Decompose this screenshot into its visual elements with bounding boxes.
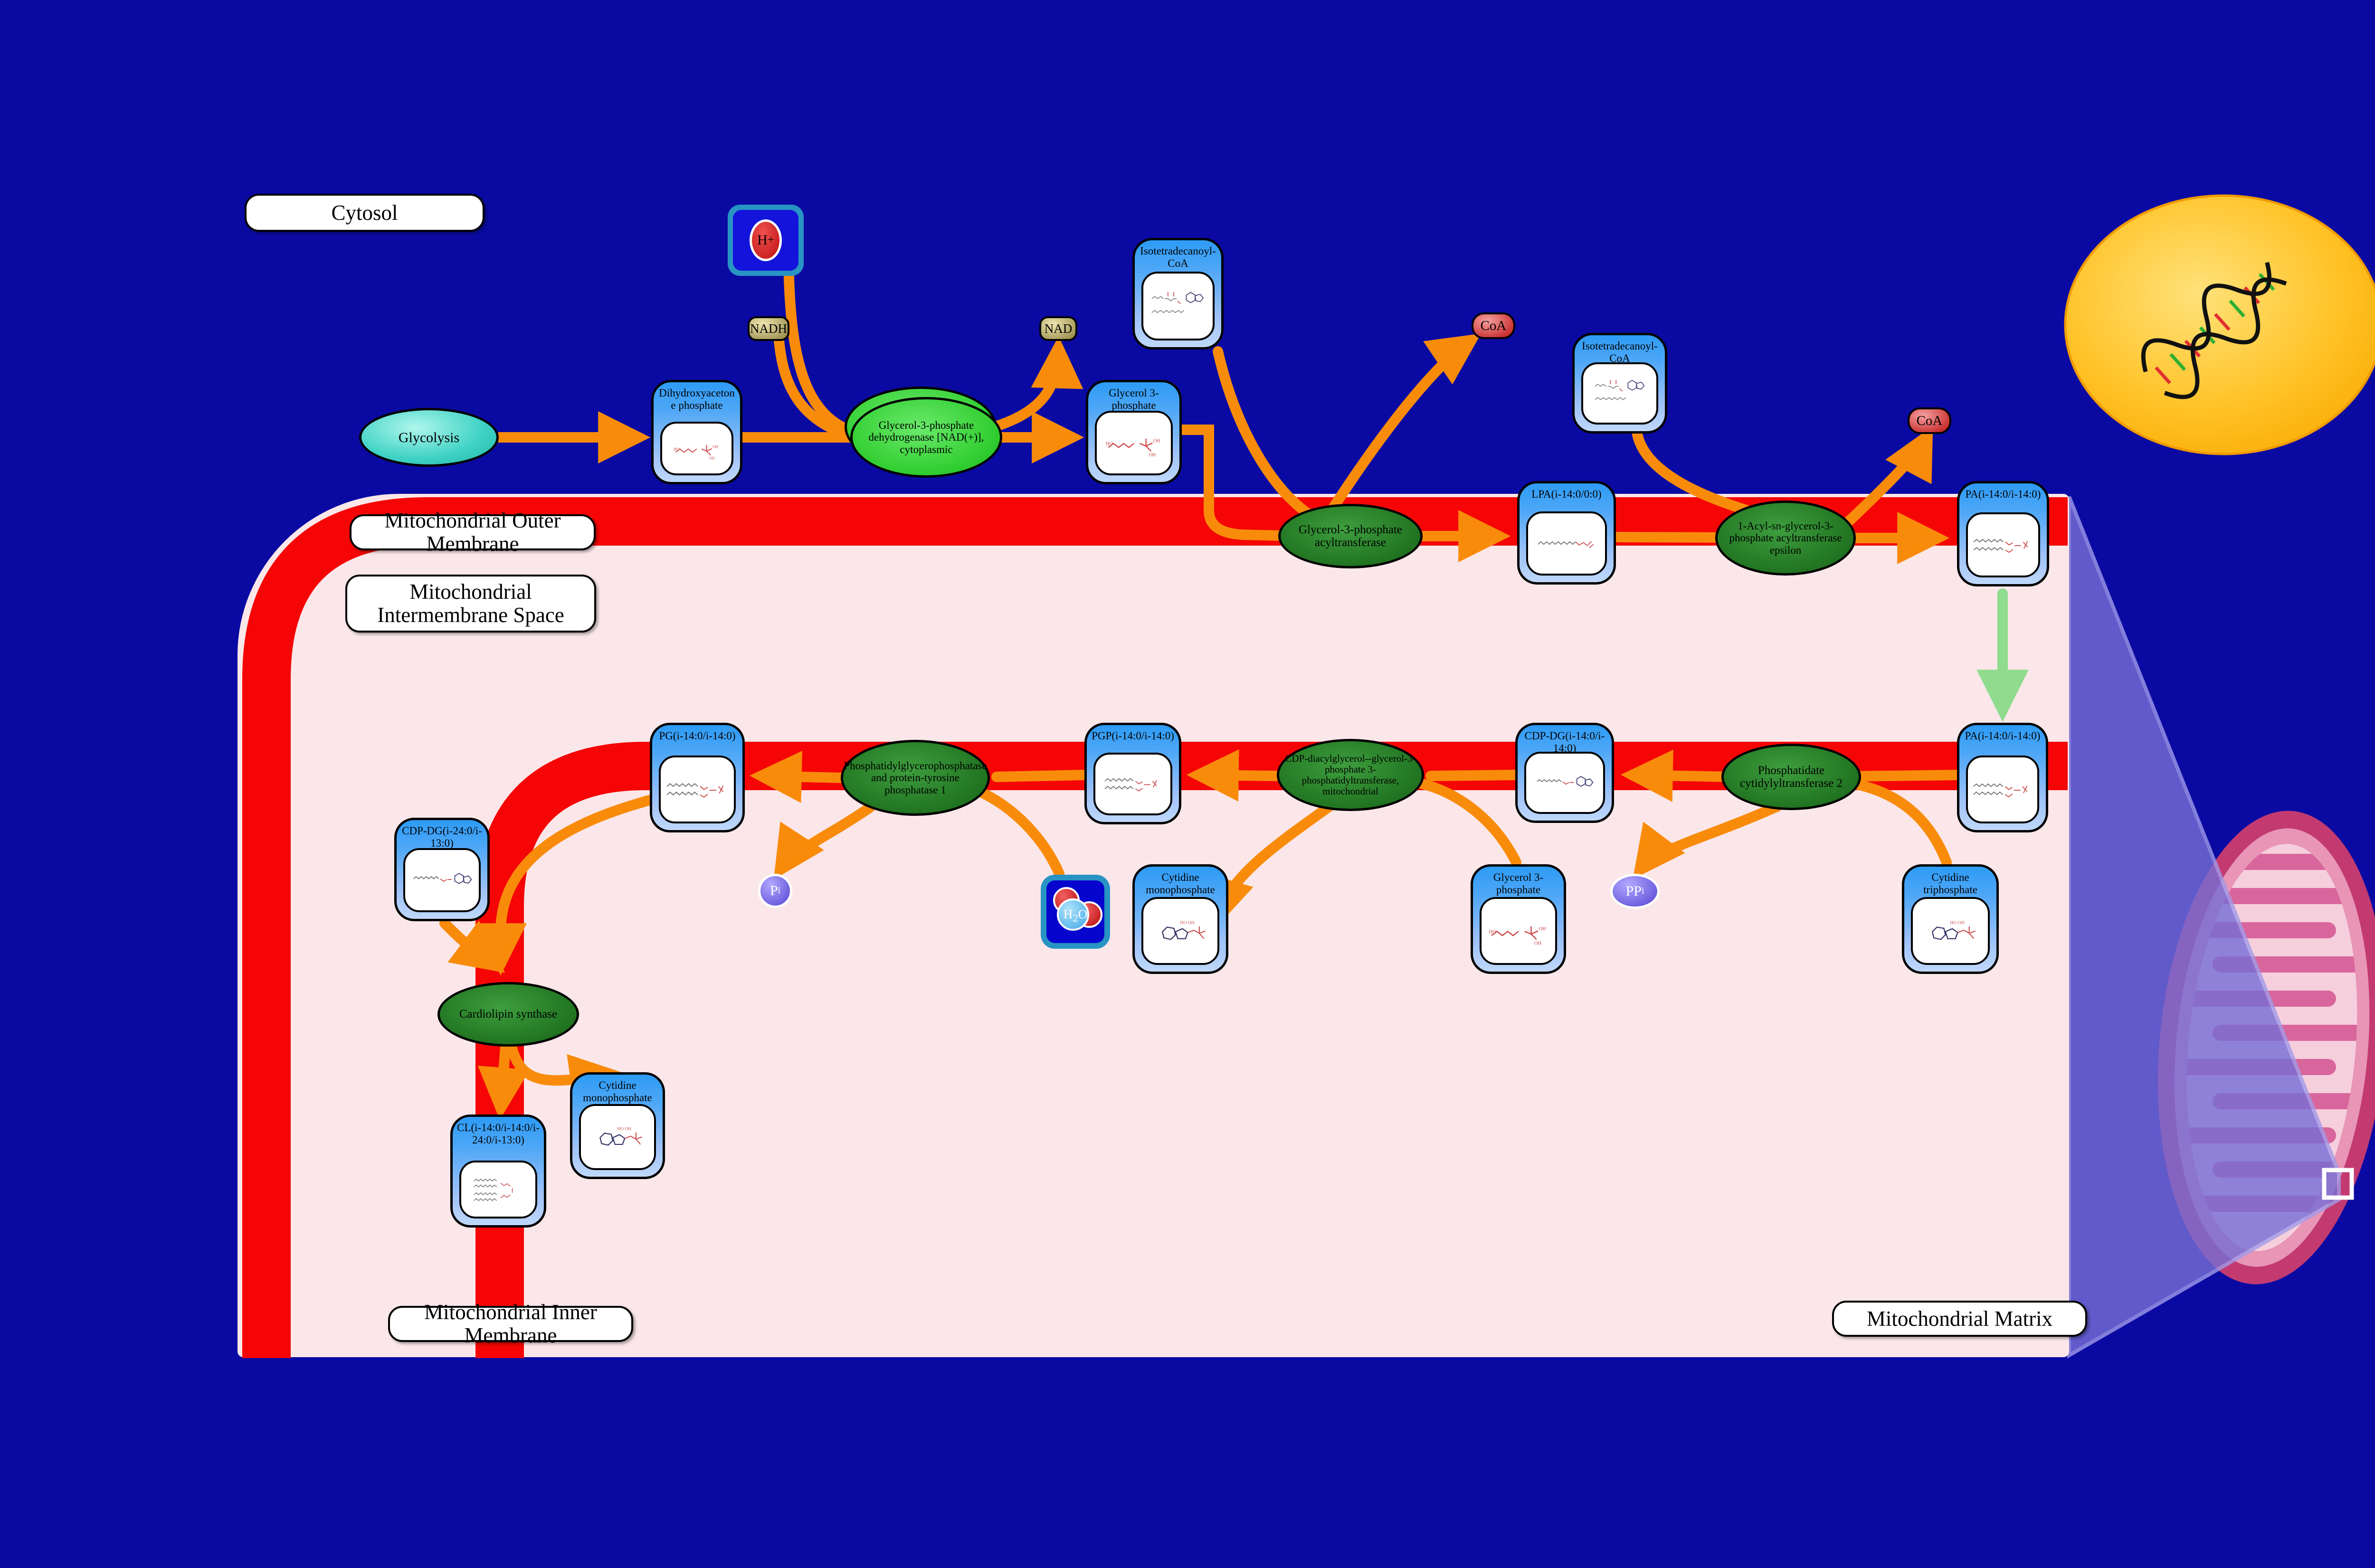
- metabolite-label: Cytidine triphosphate: [1908, 871, 1993, 896]
- badge-text: H: [1064, 907, 1073, 921]
- compartment-label-matrix: Mitochondrial Matrix: [1832, 1301, 2087, 1337]
- molecule-structure-icon: HOOH: [579, 1104, 656, 1170]
- enzyme-label: Phosphatidylglycerophosphatase and prote…: [841, 740, 990, 816]
- badge-pi[interactable]: Pi: [758, 874, 792, 908]
- molecule-structure-icon: [1581, 362, 1658, 425]
- molecule-structure-icon: HOOHOH: [1095, 411, 1173, 475]
- badge-subscript: i: [1642, 886, 1644, 897]
- molecule-structure-icon: [459, 1161, 537, 1219]
- svg-text:OH: OH: [1539, 926, 1546, 932]
- badge-subscript: 2: [1073, 912, 1078, 924]
- pathway-items: CytosolMitochondrial Outer MembraneMitoc…: [0, 0, 2375, 1568]
- metabolite-label: Dihydroxyacetone phosphate: [657, 387, 736, 412]
- proton-badge-inner: H+: [733, 210, 798, 271]
- metabolite-label: Cytidine monophosphate: [576, 1079, 659, 1104]
- molecule-structure-icon: [1966, 756, 2039, 823]
- badge-text: NADH: [750, 321, 787, 336]
- metabolite-cdpdg-1[interactable]: CDP-DG(i-14:0/i-14:0): [1515, 723, 1614, 823]
- metabolite-pg[interactable]: PG(i-14:0/i-14:0): [650, 723, 745, 832]
- enzyme-cardiolipin-synthase[interactable]: Cardiolipin synthase: [437, 982, 579, 1047]
- metabolite-label: CDP-DG(i-24:0/i-13:0): [400, 825, 484, 850]
- svg-text:HO: HO: [1489, 929, 1496, 935]
- metabolite-label: PA(i-14:0/i-14:0): [1963, 488, 2043, 501]
- metabolite-cl[interactable]: CL(i-14:0/i-14:0/i-24:0/i-13:0): [450, 1115, 546, 1228]
- metabolite-lpa[interactable]: LPA(i-14:0/0:0): [1517, 481, 1616, 585]
- enzyme-ptpmt1[interactable]: Phosphatidylglycerophosphatase and prote…: [841, 740, 990, 816]
- svg-text:OH: OH: [709, 456, 715, 460]
- compartment-label-outer-membrane: Mitochondrial Outer Membrane: [350, 514, 596, 550]
- compartment-label-cytosol: Cytosol: [245, 194, 484, 232]
- badge-coa-2[interactable]: CoA: [1908, 407, 1951, 434]
- metabolite-label: Cytidine monophosphate: [1139, 871, 1222, 896]
- metabolite-isocoa-2[interactable]: Isotetradecanoyl-CoA: [1572, 333, 1667, 434]
- enzyme-label: Glycerol-3-phosphate dehydrogenase [NAD(…: [850, 397, 1002, 478]
- enzyme-label: 1-Acyl-sn-glycerol-3-phosphate acyltrans…: [1715, 501, 1856, 576]
- metabolite-label: Glycerol 3-phosphate: [1092, 387, 1176, 412]
- metabolite-ctp[interactable]: Cytidine triphosphate HOOH: [1902, 864, 1999, 974]
- badge-subscript: i: [778, 886, 780, 896]
- metabolite-cmp-2[interactable]: Cytidine monophosphate HOOH: [1132, 864, 1228, 974]
- enzyme-label: Phosphatidate cytidylyltransferase 2: [1721, 744, 1861, 810]
- badge-tail: O: [1078, 907, 1088, 921]
- molecule-structure-icon: HOOH: [1141, 897, 1219, 965]
- enzyme-agpat-epsilon[interactable]: 1-Acyl-sn-glycerol-3-phosphate acyltrans…: [1715, 501, 1856, 576]
- svg-text:HO: HO: [617, 1127, 624, 1132]
- metabolite-pa-inner[interactable]: PA(i-14:0/i-14:0): [1957, 723, 2048, 832]
- enzyme-glycolysis[interactable]: Glycolysis: [359, 408, 499, 467]
- metabolite-g3p-matrix[interactable]: Glycerol 3-phosphate HOOHOH: [1471, 864, 1566, 974]
- badge-coa-1[interactable]: CoA: [1472, 312, 1515, 339]
- metabolite-isocoa-1[interactable]: Isotetradecanoyl-CoA: [1132, 238, 1224, 349]
- svg-text:OH: OH: [712, 444, 718, 449]
- water-badge-inner: H2O: [1046, 880, 1104, 943]
- svg-text:OH: OH: [1187, 920, 1194, 926]
- metabolite-label: Isotetradecanoyl-CoA: [1139, 245, 1217, 270]
- metabolite-pgp[interactable]: PGP(i-14:0/i-14:0): [1084, 723, 1181, 824]
- metabolite-label: Isotetradecanoyl-CoA: [1578, 340, 1661, 365]
- svg-text:HO: HO: [674, 447, 679, 451]
- molecule-structure-icon: [659, 756, 736, 823]
- enzyme-ctp-dag-transferase[interactable]: CDP-diacylglycerol--glycerol-3-phosphate…: [1277, 739, 1424, 811]
- molecule-structure-icon: HOOHOH: [660, 422, 733, 475]
- molecule-structure-icon: [1093, 753, 1172, 815]
- badge-superscript: +: [768, 234, 774, 247]
- water-label: H2O: [1046, 907, 1104, 924]
- badge-text: NAD: [1045, 321, 1073, 336]
- enzyme-label: Glycolysis: [359, 408, 499, 467]
- metabolite-label: CL(i-14:0/i-14:0/i-24:0/i-13:0): [456, 1122, 540, 1146]
- enzyme-label: Glycerol-3-phosphate acyltransferase: [1278, 504, 1423, 568]
- proton-icon: H+: [750, 219, 782, 261]
- molecule-structure-icon: [1966, 512, 2040, 577]
- svg-text:OH: OH: [625, 1127, 631, 1132]
- enzyme-gpat[interactable]: Glycerol-3-phosphate acyltransferase: [1278, 504, 1423, 568]
- badge-ppi[interactable]: PPi: [1610, 874, 1660, 909]
- svg-text:HO: HO: [1106, 442, 1112, 447]
- enzyme-pcyt2[interactable]: Phosphatidate cytidylyltransferase 2: [1721, 744, 1861, 810]
- molecule-structure-icon: HOOHOH: [1480, 897, 1557, 965]
- metabolite-dhap[interactable]: Dihydroxyacetone phosphate HOOHOH: [651, 380, 742, 484]
- metabolite-label: CDP-DG(i-14:0/i-14:0): [1521, 730, 1608, 755]
- svg-text:OH: OH: [1149, 453, 1156, 458]
- badge-text: PP: [1626, 883, 1642, 899]
- molecule-structure-icon: [1524, 752, 1605, 814]
- badge-nadh[interactable]: NADH: [748, 316, 789, 341]
- enzyme-label: Cardiolipin synthase: [437, 982, 579, 1047]
- molecule-structure-icon: HOOH: [1911, 897, 1990, 965]
- molecule-structure-icon: [1526, 511, 1607, 576]
- metabolite-pa-outer[interactable]: PA(i-14:0/i-14:0): [1957, 481, 2049, 586]
- badge-text: CoA: [1481, 318, 1507, 334]
- pathway-canvas: CytosolMitochondrial Outer MembraneMitoc…: [0, 0, 2375, 1568]
- metabolite-label: LPA(i-14:0/0:0): [1523, 488, 1610, 501]
- molecule-structure-icon: [403, 848, 481, 912]
- svg-text:HO: HO: [1180, 920, 1187, 926]
- badge-h-plus[interactable]: H+: [728, 205, 804, 276]
- metabolite-label: PA(i-14:0/i-14:0): [1963, 730, 2042, 742]
- svg-text:OH: OH: [1534, 941, 1542, 946]
- molecule-structure-icon: [1141, 272, 1215, 340]
- metabolite-g3p-cytosol[interactable]: Glycerol 3-phosphate HOOHOH: [1086, 380, 1182, 484]
- compartment-label-intermembrane-space: Mitochondrial Intermembrane Space: [345, 575, 596, 633]
- badge-text: H: [757, 232, 768, 248]
- svg-text:OH: OH: [1957, 920, 1964, 926]
- metabolite-cdpdg-2[interactable]: CDP-DG(i-24:0/i-13:0): [394, 818, 490, 921]
- metabolite-label: PGP(i-14:0/i-14:0): [1091, 730, 1175, 742]
- badge-h2o[interactable]: H2O: [1041, 875, 1110, 949]
- enzyme-gpd1[interactable]: Glycerol-3-phosphate dehydrogenase [NAD(…: [850, 397, 1002, 478]
- badge-text: CoA: [1917, 413, 1943, 429]
- badge-text: P: [770, 883, 778, 899]
- metabolite-label: PG(i-14:0/i-14:0): [656, 730, 739, 742]
- compartment-label-inner-membrane: Mitochondrial Inner Membrane: [388, 1306, 633, 1342]
- metabolite-cmp-1[interactable]: Cytidine monophosphate HOOH: [570, 1072, 665, 1179]
- enzyme-label: CDP-diacylglycerol--glycerol-3-phosphate…: [1277, 739, 1424, 811]
- svg-text:OH: OH: [1153, 438, 1160, 444]
- svg-text:HO: HO: [1950, 920, 1957, 926]
- badge-nad[interactable]: NAD: [1039, 316, 1077, 341]
- metabolite-label: Glycerol 3-phosphate: [1477, 871, 1560, 896]
